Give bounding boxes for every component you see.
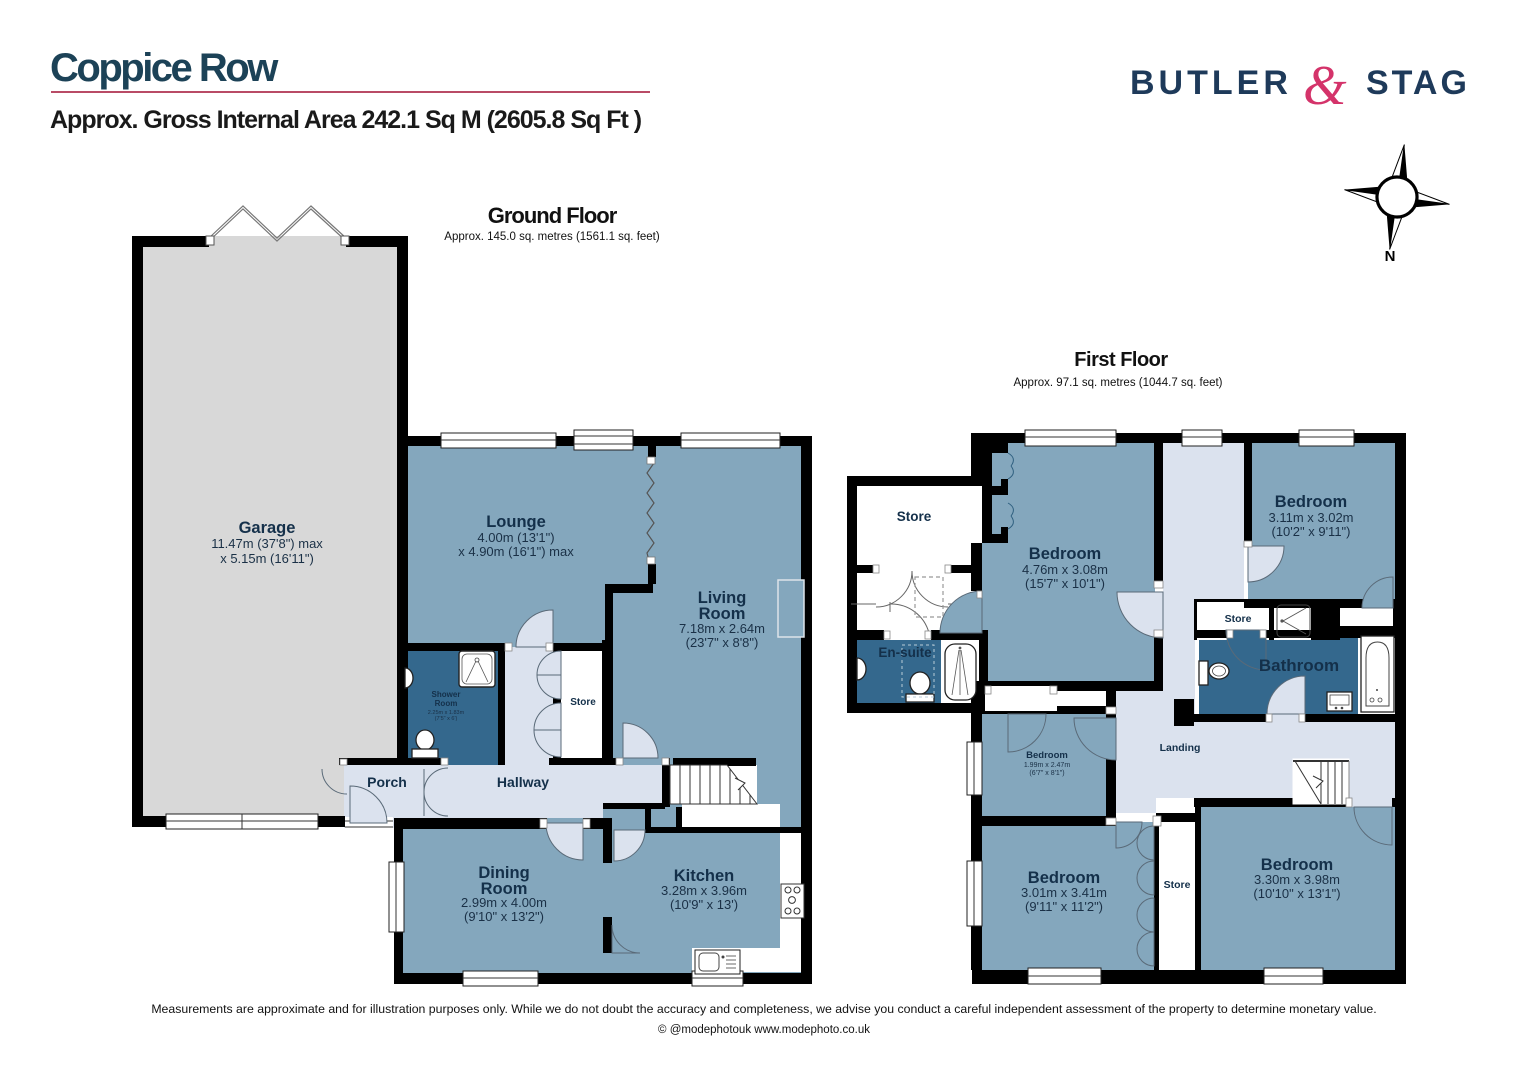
svg-text:(23'7" x 8'8"): (23'7" x 8'8") bbox=[686, 635, 759, 650]
svg-text:Shower: Shower bbox=[432, 690, 461, 699]
svg-text:© @modephotouk www.modephoto.c: © @modephotouk www.modephoto.co.uk bbox=[658, 1024, 870, 1036]
svg-text:3.30m x 3.98m: 3.30m x 3.98m bbox=[1254, 872, 1340, 887]
svg-text:First Floor: First Floor bbox=[1074, 349, 1168, 371]
svg-text:(6'7" x 8'1"): (6'7" x 8'1") bbox=[1029, 770, 1064, 777]
svg-text:Bathroom: Bathroom bbox=[1259, 656, 1339, 675]
svg-text:2.99m x 4.00m: 2.99m x 4.00m bbox=[461, 895, 547, 910]
svg-text:Store: Store bbox=[897, 509, 932, 524]
svg-text:Store: Store bbox=[1225, 613, 1252, 625]
svg-text:Bedroom: Bedroom bbox=[1275, 493, 1347, 511]
svg-text:Room: Room bbox=[435, 699, 458, 708]
svg-text:(15'7" x 10'1"): (15'7" x 10'1") bbox=[1025, 576, 1105, 591]
svg-text:3.11m x 3.02m: 3.11m x 3.02m bbox=[1268, 510, 1353, 525]
svg-text:(9'11" x 11'2"): (9'11" x 11'2") bbox=[1025, 899, 1103, 914]
svg-text:Bedroom: Bedroom bbox=[1026, 750, 1068, 761]
svg-text:x 4.90m (16'1") max: x 4.90m (16'1") max bbox=[458, 544, 574, 559]
svg-text:11.47m (37'8") max: 11.47m (37'8") max bbox=[211, 536, 323, 551]
svg-text:x 5.15m (16'11"): x 5.15m (16'11") bbox=[220, 551, 314, 566]
svg-text:N: N bbox=[1385, 248, 1396, 265]
svg-text:Lounge: Lounge bbox=[486, 513, 546, 531]
svg-text:BUTLER: BUTLER bbox=[1130, 64, 1292, 102]
svg-text:STAG: STAG bbox=[1366, 64, 1470, 102]
svg-text:Ground Floor: Ground Floor bbox=[488, 203, 618, 228]
svg-text:Store: Store bbox=[1164, 879, 1191, 891]
svg-text:Approx. 145.0 sq. metres (1561: Approx. 145.0 sq. metres (1561.1 sq. fee… bbox=[444, 231, 660, 243]
svg-text:4.00m (13'1"): 4.00m (13'1") bbox=[477, 530, 554, 545]
svg-text:(7'5" x 6'): (7'5" x 6') bbox=[435, 716, 458, 722]
svg-text:Hallway: Hallway bbox=[497, 774, 549, 790]
svg-text:Coppice Row: Coppice Row bbox=[50, 46, 279, 90]
svg-text:Approx. Gross Internal Area 24: Approx. Gross Internal Area 242.1 Sq M (… bbox=[50, 106, 642, 134]
svg-text:Landing: Landing bbox=[1160, 742, 1201, 754]
svg-text:(10'10" x 13'1"): (10'10" x 13'1") bbox=[1253, 886, 1340, 901]
svg-text:(10'9" x 13'): (10'9" x 13') bbox=[670, 897, 738, 912]
svg-text:1.99m x 2.47m: 1.99m x 2.47m bbox=[1024, 762, 1070, 769]
svg-text:(9'10" x 13'2"): (9'10" x 13'2") bbox=[464, 909, 544, 924]
svg-text:En-suite: En-suite bbox=[878, 645, 932, 660]
svg-text:7.18m x 2.64m: 7.18m x 2.64m bbox=[679, 621, 765, 636]
svg-text:Porch: Porch bbox=[367, 774, 407, 790]
svg-text:4.76m x 3.08m: 4.76m x 3.08m bbox=[1022, 562, 1108, 577]
svg-text:&: & bbox=[1303, 55, 1347, 117]
svg-text:Garage: Garage bbox=[239, 519, 296, 537]
svg-text:3.28m x 3.96m: 3.28m x 3.96m bbox=[661, 883, 747, 898]
svg-text:(10'2" x 9'11"): (10'2" x 9'11") bbox=[1272, 524, 1351, 539]
svg-text:Approx. 97.1 sq. metres (1044.: Approx. 97.1 sq. metres (1044.7 sq. feet… bbox=[1013, 377, 1222, 389]
svg-text:Measurements are approximate a: Measurements are approximate and for ill… bbox=[151, 1002, 1376, 1016]
svg-text:3.01m x 3.41m: 3.01m x 3.41m bbox=[1021, 885, 1107, 900]
svg-text:Bedroom: Bedroom bbox=[1029, 545, 1101, 563]
svg-text:Store: Store bbox=[570, 697, 596, 708]
